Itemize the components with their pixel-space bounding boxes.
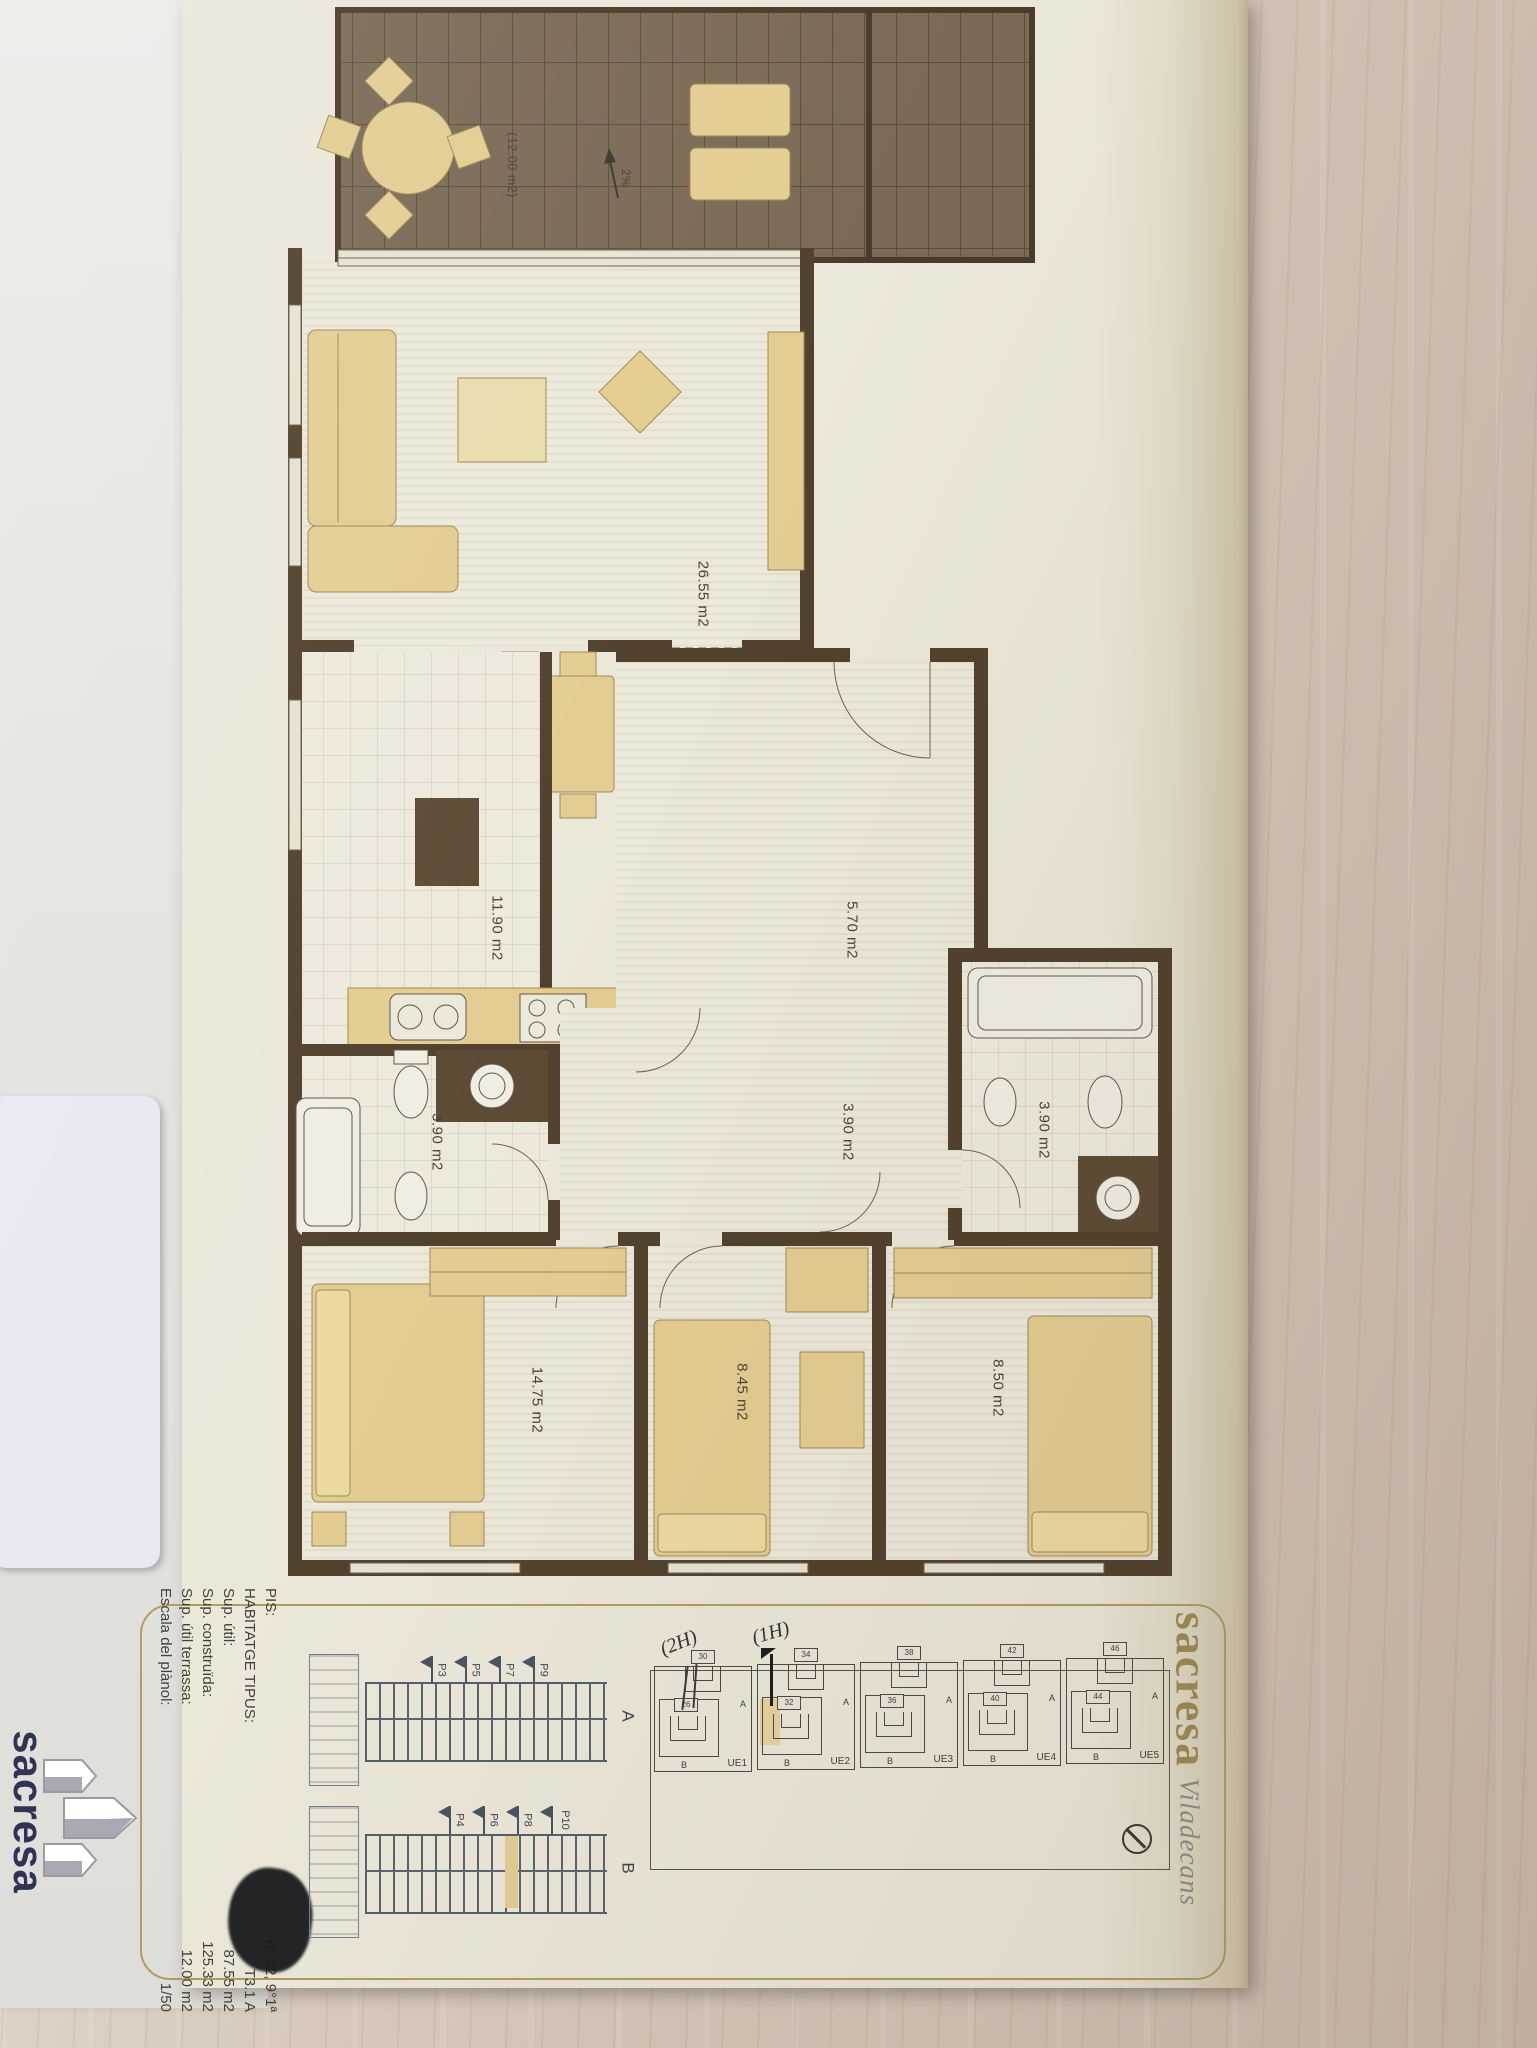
stair-steps-drawing <box>365 1834 607 1914</box>
level-flag-label: P5 <box>470 1663 482 1676</box>
legend-value: 87.55 m2 <box>218 1949 239 2012</box>
street-number: 44 <box>1086 1690 1110 1704</box>
corridor <box>560 1008 974 1234</box>
toilet <box>394 1066 428 1118</box>
portal-b-stair-icon <box>979 1710 1015 1735</box>
street-number: 34 <box>794 1648 818 1662</box>
portal-a-stair-icon <box>685 1667 721 1692</box>
sofa <box>308 330 396 526</box>
portal-b-label: B <box>990 1754 996 1764</box>
street-number: 36 <box>880 1694 904 1708</box>
bath-right-area-label: 3.90 m2 <box>1036 1101 1053 1159</box>
portal-b-block: 36 <box>865 1695 925 1753</box>
portal-a-stair-icon <box>1097 1659 1133 1684</box>
living-area-label: 26.55 m2 <box>695 561 712 628</box>
portal-b-label: B <box>1093 1752 1099 1762</box>
unit-name: UE3 <box>934 1754 953 1765</box>
section-label: B <box>617 1862 637 1873</box>
level-flag: P8 <box>517 1806 519 1834</box>
bedroom-main-area-label: 14.75 m2 <box>529 1367 546 1434</box>
level-flag-label: P6 <box>488 1813 500 1826</box>
unit-name: UE2 <box>831 1756 850 1767</box>
bath-left-area-label: 3.90 m2 <box>429 1113 446 1171</box>
site-unit-ue4: 42 A 40 B UE4 <box>963 1660 1061 1766</box>
portal-b-label: B <box>887 1756 893 1766</box>
bathtub <box>968 968 1152 1038</box>
legend-label: Sup. construïda: <box>197 1588 218 1697</box>
portal-b-stair-icon <box>670 1716 706 1741</box>
section-label: A <box>617 1710 637 1721</box>
desk <box>800 1352 864 1448</box>
portal-a-stair-icon <box>891 1663 927 1688</box>
site-plan: 30 A 26 B UE1 34 A 32 B UE2 38 A <box>650 1652 1174 1886</box>
portal-b-block: 44 <box>1071 1691 1131 1749</box>
terrace-bench <box>690 84 790 136</box>
portal-b-stair-icon <box>1082 1708 1118 1733</box>
level-flag: P4 <box>449 1806 451 1834</box>
legend-label: Sup. útil terrassa: <box>176 1588 197 1705</box>
portal-a-label: A <box>946 1695 952 1705</box>
portal-a-label: A <box>843 1697 849 1707</box>
portal-a-label: A <box>1152 1691 1158 1701</box>
hall-area-label: 5.70 m2 <box>844 901 861 959</box>
level-flag: P6 <box>483 1806 485 1834</box>
bedrooms <box>288 1232 1172 1576</box>
terrace-slope-label: 2% <box>619 169 633 187</box>
street-number: 38 <box>897 1646 921 1660</box>
street-number: 32 <box>777 1696 801 1710</box>
building-section-b: P4 P6 P8 P10 B <box>303 1800 639 1948</box>
terrace-area-label: (12.00 m2) <box>505 132 519 197</box>
highlighted-flat-in-section <box>505 1836 518 1908</box>
portal-b-stair-icon <box>773 1714 809 1739</box>
level-flag-label: P8 <box>522 1813 534 1826</box>
site-unit-ue1: 30 A 26 B UE1 <box>654 1666 752 1772</box>
street-number: 46 <box>1103 1642 1127 1656</box>
level-flag: P5 <box>465 1656 467 1684</box>
level-flag-label: P9 <box>538 1663 550 1676</box>
bidet <box>395 1172 427 1220</box>
legend-row: Sup. útil terrassa:12.00 m2 <box>176 1588 197 2012</box>
legend-value: 12.00 m2 <box>176 1949 197 2012</box>
portal-b-stair-icon <box>876 1712 912 1737</box>
bathroom-right <box>948 948 1172 1248</box>
level-flag: P10 <box>551 1806 553 1834</box>
street-number: 30 <box>691 1650 715 1664</box>
corridor-area-label: 3.90 m2 <box>840 1103 857 1161</box>
bedroom-3-area-label: 8.50 m2 <box>990 1359 1007 1417</box>
legend-value: 1/50 <box>155 1983 176 2012</box>
toilet <box>1088 1076 1122 1128</box>
legend-value: T3.1 A <box>239 1969 260 2012</box>
elevator-shaft-drawing <box>309 1806 359 1938</box>
legend-value: 125.33 m2 <box>197 1941 218 2012</box>
bathroom-left <box>288 1044 560 1244</box>
unit-name: UE5 <box>1140 1750 1159 1761</box>
level-flag-label: P7 <box>504 1663 516 1676</box>
legend-label: HABITATGE TIPUS: <box>239 1588 260 1723</box>
crossed-circle-symbol <box>1122 1824 1152 1854</box>
level-flag: P7 <box>499 1656 501 1684</box>
street-number: 40 <box>983 1692 1007 1706</box>
kitchen-area-label: 11.90 m2 <box>489 895 506 960</box>
legend-row: Sup. construïda:125.33 m2 <box>197 1588 218 2012</box>
level-flag: P9 <box>533 1656 535 1684</box>
unit-name: UE1 <box>728 1758 747 1769</box>
bathtub <box>296 1098 360 1236</box>
sideboard <box>768 332 804 570</box>
portal-a-stair-icon <box>994 1661 1030 1686</box>
portal-b-label: B <box>681 1760 687 1770</box>
brand-wordmark: sacresa <box>1166 1612 1219 1768</box>
portal-a-label: A <box>740 1699 746 1709</box>
photo-of-floorplan-brochure: (12.00 m2) 2% 26.55 m2 11.90 m2 5.70 m2 … <box>0 0 1537 2048</box>
level-flag: P3 <box>431 1656 433 1684</box>
pen-pin-line <box>770 1654 773 1706</box>
terrace <box>317 10 1032 260</box>
washbasin <box>470 1064 514 1108</box>
portal-a-label: A <box>1049 1693 1055 1703</box>
portal-b-block: 40 <box>968 1693 1028 1751</box>
elevator-shaft-drawing <box>309 1654 359 1786</box>
legend-label: Sup. útil: <box>218 1588 239 1646</box>
portal-b-block: 26 <box>659 1699 719 1757</box>
pen-pin-flag-icon <box>761 1648 776 1659</box>
terrace-table <box>362 102 454 194</box>
level-flag-label: P10 <box>559 1810 571 1830</box>
site-unit-ue5: 46 A 44 B UE5 <box>1066 1658 1164 1764</box>
living-room <box>288 248 814 660</box>
bedroom-2-area-label: 8.45 m2 <box>734 1363 751 1421</box>
hall <box>616 648 988 1008</box>
level-flag-label: P4 <box>454 1813 466 1826</box>
kitchen-column <box>415 798 479 886</box>
building-section-a: P3 P5 P7 P9 A <box>303 1648 639 1794</box>
brand-city: Viladecans <box>1174 1778 1205 1906</box>
sacresa-logo-icon <box>42 1752 138 1884</box>
coffee-table <box>458 378 546 462</box>
portal-b-label: B <box>784 1758 790 1768</box>
kitchen-sink <box>390 994 466 1040</box>
street-number: 42 <box>1000 1644 1024 1658</box>
stair-steps-drawing <box>365 1682 607 1762</box>
legend-label: PIS: <box>260 1588 281 1616</box>
unit-name: UE4 <box>1037 1752 1056 1763</box>
level-flag-label: P3 <box>436 1663 448 1676</box>
portal-a-stair-icon <box>788 1665 824 1690</box>
washbasin <box>1096 1176 1140 1220</box>
legend-row: Escala del plànol:1/50 <box>155 1588 176 2012</box>
legend-label: Escala del plànol: <box>155 1588 176 1706</box>
site-unit-ue3: 38 A 36 B UE3 <box>860 1662 958 1768</box>
bidet <box>984 1078 1016 1126</box>
